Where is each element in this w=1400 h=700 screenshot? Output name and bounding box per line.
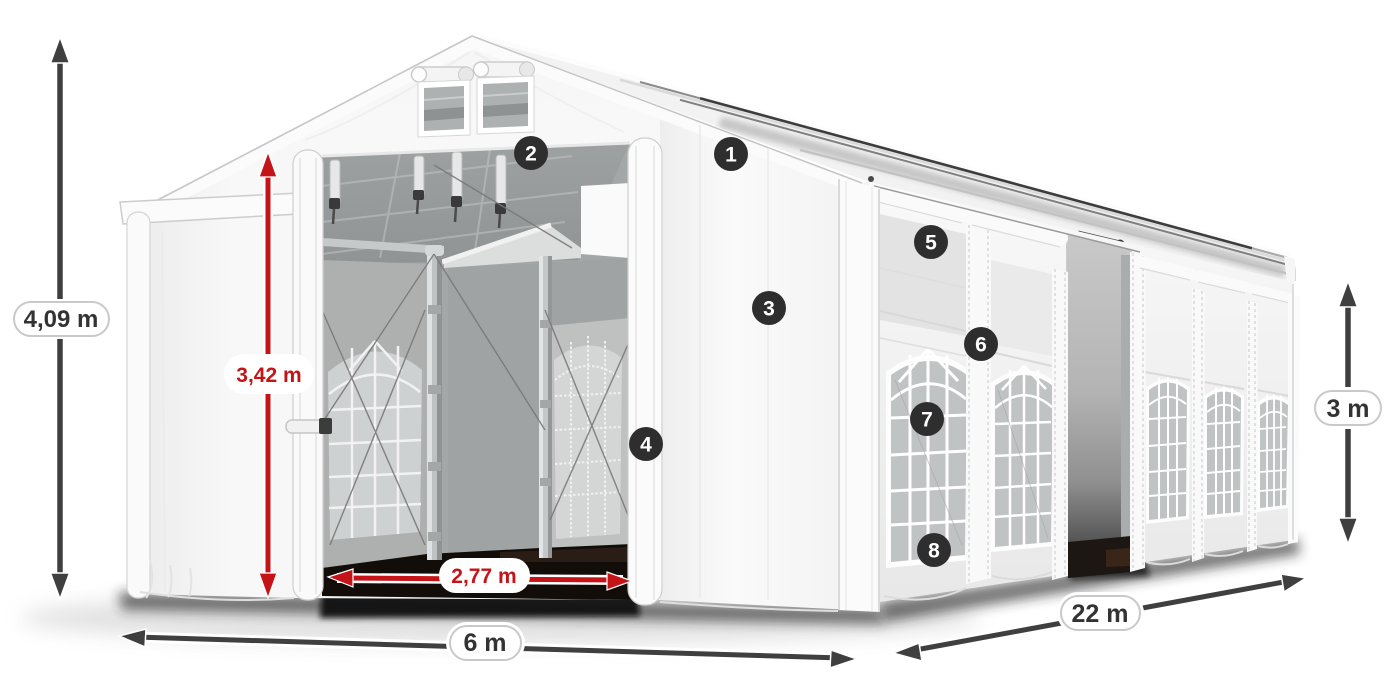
svg-text:5: 5 [925,232,937,255]
svg-text:6 m: 6 m [463,629,506,657]
svg-text:2,77 m: 2,77 m [451,565,516,588]
svg-text:7: 7 [921,409,933,432]
svg-text:2: 2 [525,143,537,166]
svg-text:22 m: 22 m [1072,600,1129,628]
svg-text:3,42 m: 3,42 m [236,364,301,387]
svg-text:1: 1 [725,144,737,167]
svg-text:3: 3 [763,298,775,321]
svg-text:6: 6 [975,334,987,357]
svg-text:4: 4 [640,434,652,457]
svg-text:4,09 m: 4,09 m [24,306,99,333]
svg-text:8: 8 [928,540,940,563]
svg-text:3 m: 3 m [1326,395,1369,423]
